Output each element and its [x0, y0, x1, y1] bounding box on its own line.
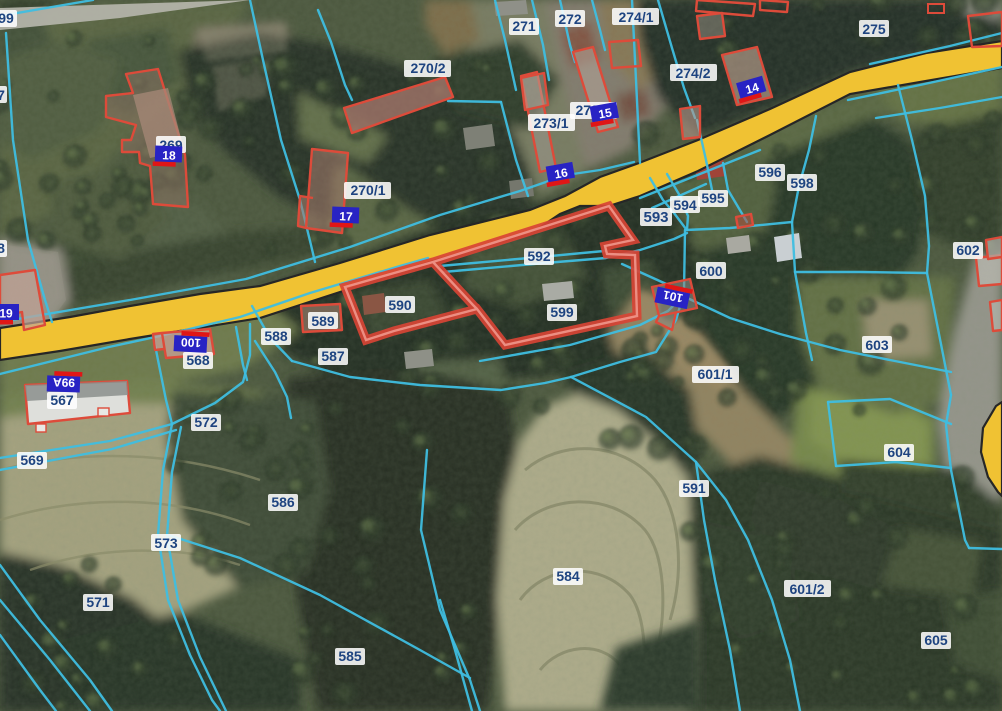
- svg-text:8: 8: [0, 240, 5, 256]
- svg-text:568: 568: [186, 352, 210, 368]
- svg-text:596: 596: [758, 164, 782, 180]
- svg-text:602: 602: [956, 242, 980, 258]
- svg-text:573: 573: [154, 535, 178, 551]
- svg-text:273/1: 273/1: [533, 115, 568, 131]
- svg-text:590: 590: [388, 297, 412, 313]
- svg-text:270/1: 270/1: [350, 182, 385, 198]
- svg-text:585: 585: [338, 648, 362, 664]
- svg-text:569: 569: [20, 452, 44, 468]
- svg-text:604: 604: [887, 444, 911, 460]
- svg-text:272: 272: [558, 11, 582, 27]
- svg-text:601/1: 601/1: [697, 366, 732, 382]
- svg-text:589: 589: [311, 313, 335, 329]
- svg-text:271: 271: [512, 18, 536, 34]
- svg-text:99A: 99A: [52, 375, 75, 390]
- svg-text:274/2: 274/2: [675, 65, 710, 81]
- svg-text:100: 100: [180, 335, 201, 350]
- svg-text:270/2: 270/2: [410, 60, 445, 76]
- svg-text:17: 17: [339, 209, 353, 223]
- svg-text:16: 16: [553, 165, 569, 181]
- svg-text:587: 587: [321, 348, 345, 364]
- svg-text:567: 567: [50, 392, 74, 408]
- svg-text:595: 595: [701, 190, 725, 206]
- svg-text:588: 588: [264, 328, 288, 344]
- svg-text:591: 591: [682, 480, 706, 496]
- svg-text:598: 598: [790, 175, 814, 191]
- svg-text:274/1: 274/1: [618, 9, 653, 25]
- svg-text:593: 593: [643, 209, 668, 226]
- svg-text:592: 592: [527, 248, 551, 264]
- svg-text:605: 605: [924, 632, 948, 648]
- svg-text:584: 584: [556, 568, 580, 584]
- svg-text:600: 600: [699, 263, 723, 279]
- svg-text:586: 586: [271, 494, 295, 510]
- svg-text:599: 599: [550, 304, 574, 320]
- svg-text:603: 603: [865, 337, 889, 353]
- svg-text:594: 594: [673, 197, 697, 213]
- svg-text:15: 15: [597, 105, 613, 121]
- svg-text:571: 571: [86, 594, 110, 610]
- svg-text:572: 572: [194, 414, 218, 430]
- svg-text:601/2: 601/2: [789, 581, 824, 597]
- svg-text:99: 99: [0, 10, 14, 26]
- svg-text:18: 18: [162, 148, 176, 162]
- svg-text:275: 275: [862, 21, 886, 37]
- svg-text:7: 7: [0, 87, 5, 103]
- svg-text:19: 19: [0, 307, 13, 321]
